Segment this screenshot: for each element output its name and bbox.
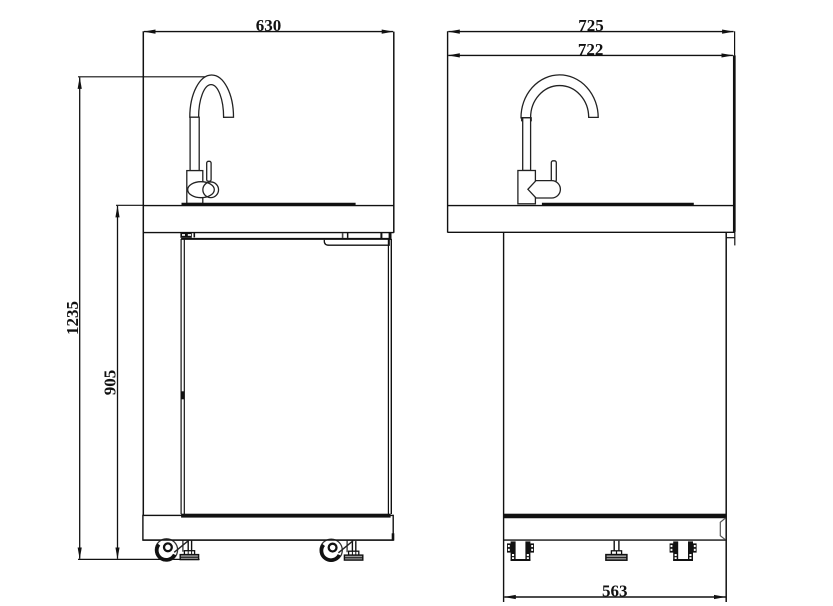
svg-text:630: 630 [256,16,282,35]
svg-text:1235: 1235 [63,301,82,335]
svg-text:725: 725 [578,16,604,35]
svg-text:563: 563 [602,582,628,601]
svg-text:905: 905 [101,370,120,396]
svg-text:722: 722 [578,40,604,59]
